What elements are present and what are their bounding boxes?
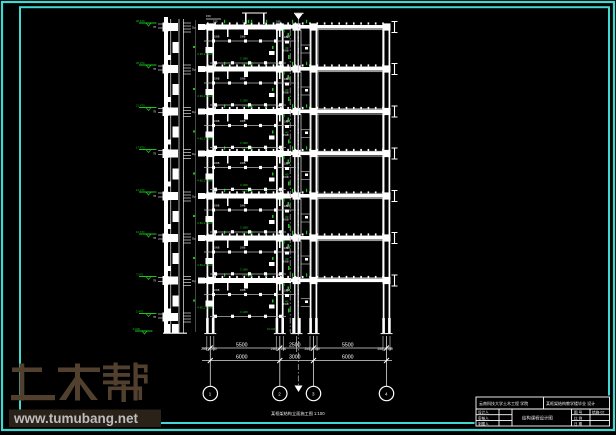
svg-text:某框架结构教学楼毕业 设计: 某框架结构教学楼毕业 设计: [546, 400, 595, 406]
svg-text:-0.030: -0.030: [132, 327, 140, 331]
svg-text:2500: 2500: [289, 342, 301, 348]
svg-text:3.470: 3.470: [136, 309, 143, 313]
svg-text:17.870: 17.870: [136, 145, 145, 149]
svg-text:250: 250: [378, 347, 384, 351]
svg-text:7.070: 7.070: [136, 272, 143, 276]
svg-text:3000: 3000: [289, 355, 301, 361]
svg-text:云南科技大学土木工程 学院: 云南科技大学土木工程 学院: [479, 400, 528, 406]
svg-text:结构课程设计图: 结构课程设计图: [522, 415, 553, 422]
svg-text:6000: 6000: [342, 355, 354, 361]
svg-text:250: 250: [388, 347, 394, 351]
svg-text:10.670: 10.670: [136, 230, 145, 234]
svg-text:审核人: 审核人: [478, 415, 489, 420]
svg-text:250: 250: [305, 347, 311, 351]
svg-text:www.tumubang.net: www.tumubang.net: [13, 411, 138, 426]
svg-text:21.470: 21.470: [136, 103, 145, 107]
svg-text:250: 250: [315, 347, 321, 351]
svg-text:比 例: 比 例: [574, 415, 583, 420]
svg-text:25.070: 25.070: [136, 61, 145, 65]
svg-text:结施-02: 结施-02: [592, 410, 604, 415]
svg-text:制图人: 制图人: [478, 421, 489, 426]
svg-text:6000: 6000: [236, 355, 248, 361]
svg-text:28.670: 28.670: [136, 19, 145, 23]
svg-text:150: 150: [206, 14, 211, 18]
svg-text:5500: 5500: [342, 342, 354, 348]
svg-text:某框架结构立面施工图 1:100: 某框架结构立面施工图 1:100: [271, 410, 325, 417]
svg-text:图 号: 图 号: [574, 410, 583, 415]
svg-text:±0.000: ±0.000: [267, 327, 276, 331]
svg-text:设计人: 设计人: [478, 410, 489, 415]
svg-text:250: 250: [201, 347, 207, 351]
svg-text:日 期: 日 期: [574, 421, 583, 426]
svg-text:14.270: 14.270: [136, 188, 145, 192]
svg-text:250: 250: [211, 347, 217, 351]
svg-text:250: 250: [271, 347, 277, 351]
svg-text:5500: 5500: [236, 342, 248, 348]
svg-text:250: 250: [281, 347, 287, 351]
